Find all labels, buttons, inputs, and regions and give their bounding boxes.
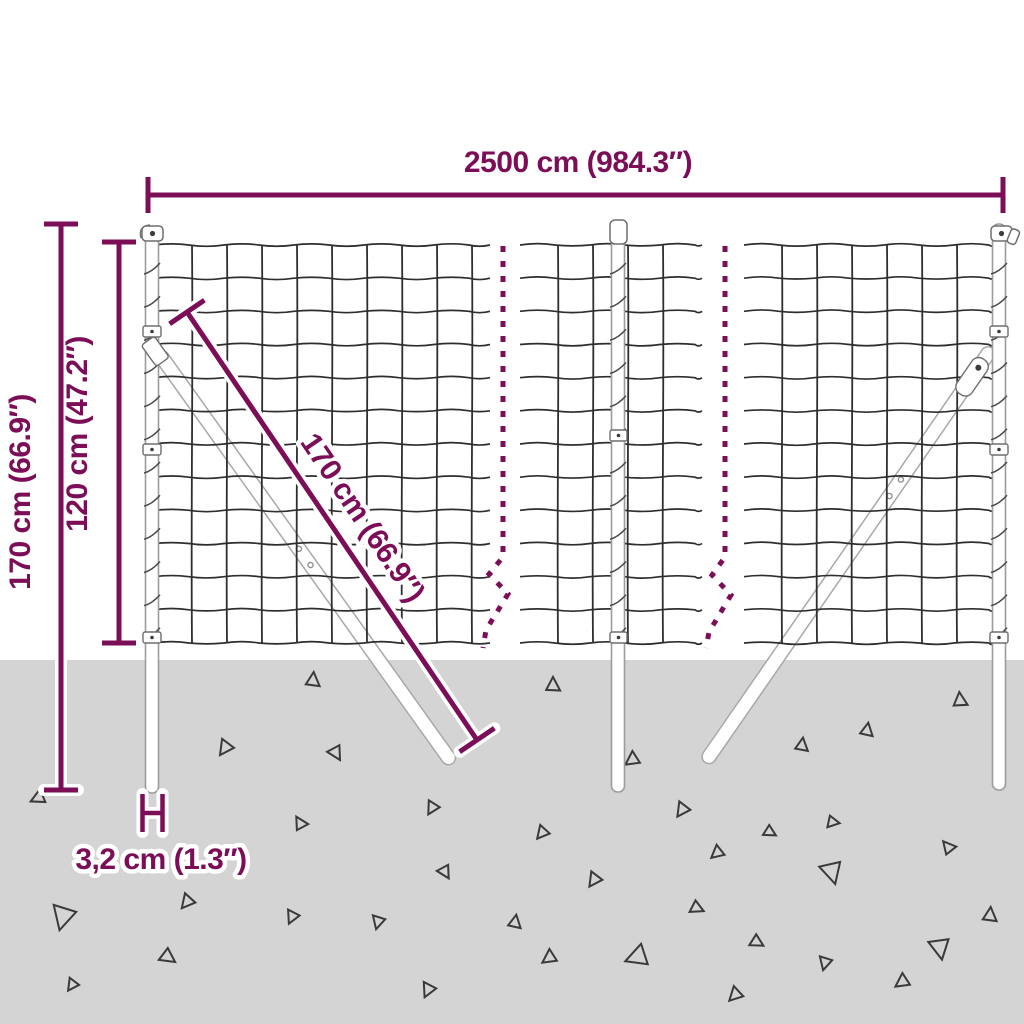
post-thickness-label: 3,2 cm (1.3″)	[75, 843, 246, 876]
fence-post-right	[993, 224, 1006, 790]
total-width-label: 2500 cm (984.3″)	[464, 146, 692, 179]
break-line-left	[483, 246, 508, 648]
mesh-height-label: 120 cm (47.2″)	[61, 336, 94, 532]
fence-post-left	[146, 230, 159, 793]
post-cap-middle	[610, 220, 627, 244]
fence-dimension-diagram: 2500 cm (984.3″) 170 cm (66.9″) 120 cm (…	[0, 0, 1024, 1024]
dimension-mesh-height: 120 cm (47.2″)	[61, 242, 136, 643]
fence-post-middle	[612, 226, 625, 792]
diagram-canvas: 2500 cm (984.3″) 170 cm (66.9″) 120 cm (…	[0, 0, 1024, 1024]
post-wire-spirals	[144, 263, 1007, 639]
total-height-label: 170 cm (66.9″)	[4, 394, 37, 590]
dimension-total-width: 2500 cm (984.3″)	[148, 146, 1003, 213]
post-clamps	[143, 326, 1008, 643]
break-line-right	[706, 246, 731, 648]
